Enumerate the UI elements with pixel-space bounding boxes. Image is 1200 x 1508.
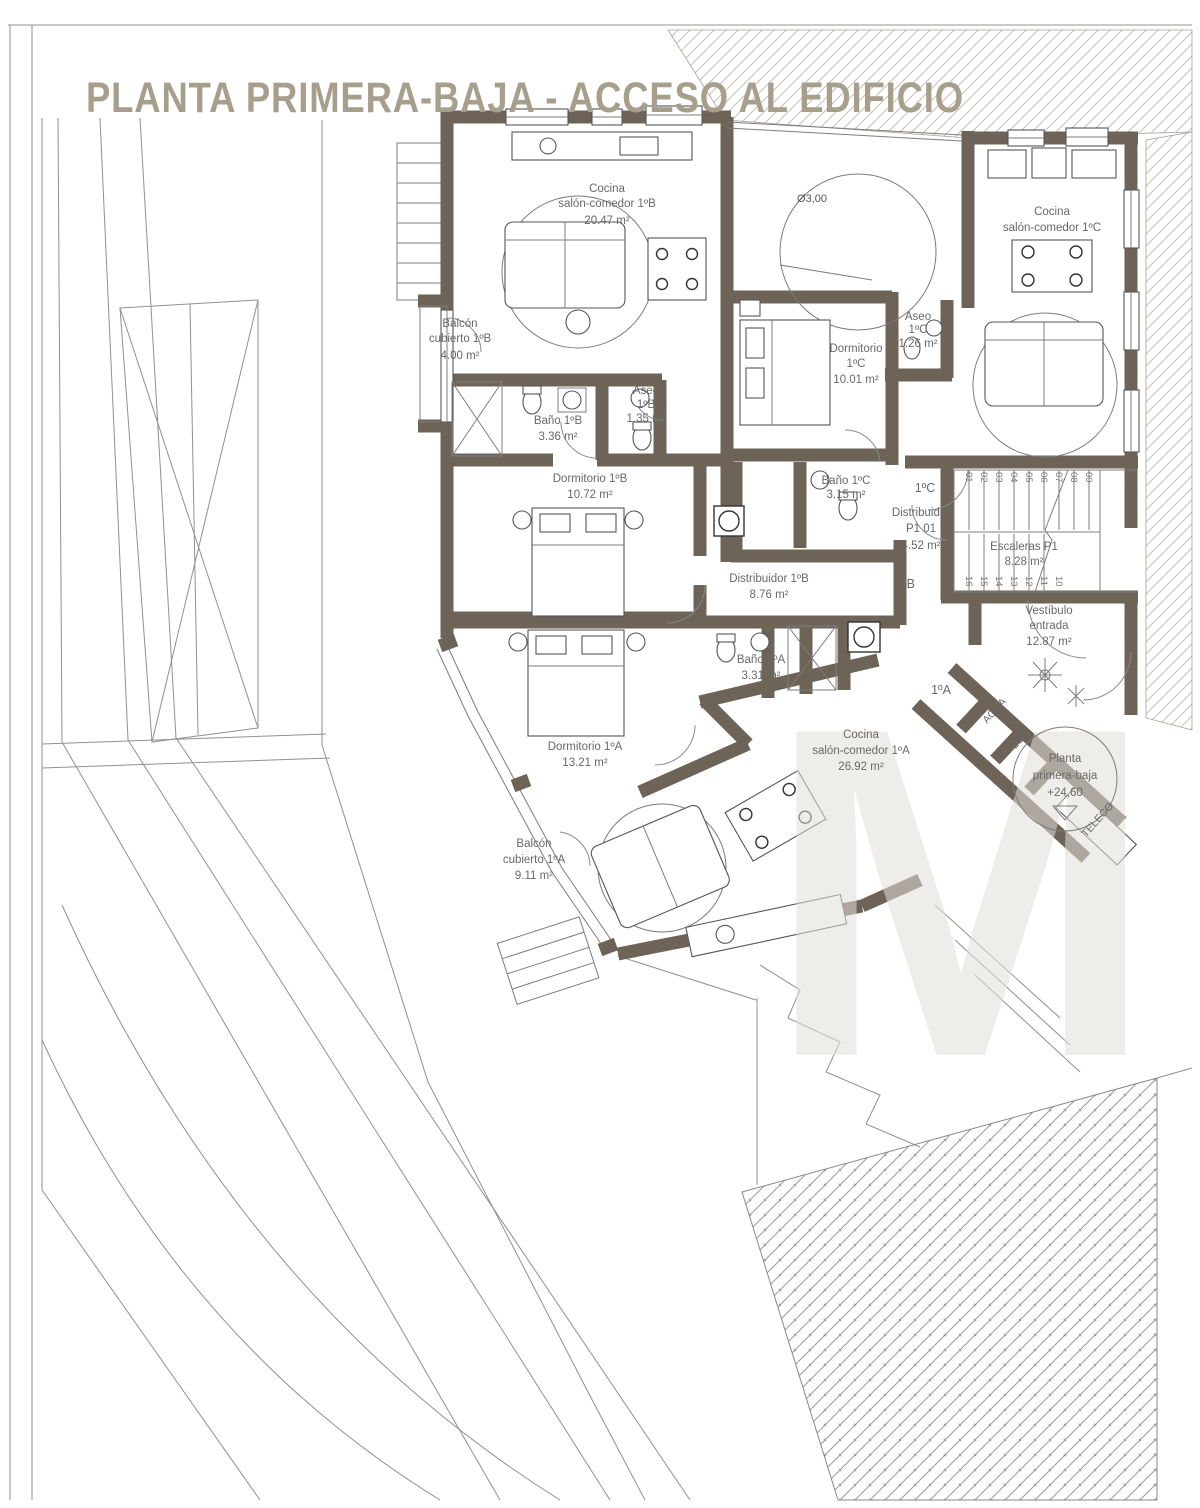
svg-text:+24,60: +24,60 xyxy=(1047,787,1083,799)
svg-text:Balcóncubierto 1ºA9.11 m²: Balcóncubierto 1ºA9.11 m² xyxy=(503,838,566,882)
svg-text:Baño 1ºB3.36 m²: Baño 1ºB3.36 m² xyxy=(534,415,583,443)
stair-number: 13 xyxy=(1008,576,1019,587)
stair-number: 01 xyxy=(963,472,974,483)
svg-text:Cocinasalón-comedor 1ºC: Cocinasalón-comedor 1ºC xyxy=(1003,206,1101,234)
stair-number: 05 xyxy=(1023,472,1034,483)
patio-diameter-label: Ø3,00 xyxy=(797,193,827,205)
stair-number: 11 xyxy=(1038,576,1049,586)
level-marker-line: primera-baja xyxy=(1033,770,1098,782)
svg-text:Balcóncubierto 1ºB4.00 m²: Balcóncubierto 1ºB4.00 m² xyxy=(429,318,492,362)
unit-tag-1b: 1ºB xyxy=(895,577,915,591)
svg-text:Dormitorio 1ºB10.72 m²: Dormitorio 1ºB10.72 m² xyxy=(553,473,628,501)
unit-tag-1c: 1ºC xyxy=(915,481,936,495)
stair-number: 07 xyxy=(1053,472,1064,483)
stair-number: 16 xyxy=(963,576,974,587)
svg-text:Vestíbuloentrada12.87 m²: Vestíbuloentrada12.87 m² xyxy=(1025,605,1072,648)
svg-text:Dormitorio1ºC10.01 m²: Dormitorio1ºC10.01 m² xyxy=(829,343,882,386)
svg-text:Cocinasalón-comedor 1ºB20.47 m: Cocinasalón-comedor 1ºB20.47 m² xyxy=(558,183,656,227)
floorplan-drawing: 01 02 03 04 05 06 07 08 09 16 15 14 13 1… xyxy=(0,0,1200,1508)
stair-number: 10 xyxy=(1053,576,1064,587)
staircase: 01 02 03 04 05 06 07 08 09 16 15 14 13 1… xyxy=(954,470,1138,592)
page-title: PLANTA PRIMERA-BAJA - ACCESO AL EDIFICIO xyxy=(86,74,964,122)
level-marker-line: +24,60 xyxy=(1047,787,1083,799)
floorplan-page: 01 02 03 04 05 06 07 08 09 16 15 14 13 1… xyxy=(0,0,1200,1508)
svg-text:Distribuidor 1ºB8.76 m²: Distribuidor 1ºB8.76 m² xyxy=(729,573,809,601)
svg-text:Dormitorio 1ºA13.21 m²: Dormitorio 1ºA13.21 m² xyxy=(548,741,623,769)
stair-number: 04 xyxy=(1008,472,1019,483)
stair-number: 12 xyxy=(1023,576,1034,587)
stair-number: 08 xyxy=(1068,472,1079,483)
svg-text:primera-baja: primera-baja xyxy=(1033,770,1098,782)
exterior-stair xyxy=(397,143,445,300)
unit-tag-1a: 1ºA xyxy=(931,683,952,697)
svg-text:Baño 1ºC3.15 m²: Baño 1ºC3.15 m² xyxy=(822,475,871,501)
stair-number: 14 xyxy=(993,576,1004,587)
stair-number: 02 xyxy=(978,472,989,483)
stair-number: 15 xyxy=(978,576,989,587)
svg-text:Planta: Planta xyxy=(1049,753,1082,765)
watermark-letter: M xyxy=(765,630,1157,1155)
stair-number: 09 xyxy=(1083,472,1094,483)
stair-number: 06 xyxy=(1038,472,1049,483)
level-marker-line: Planta xyxy=(1049,753,1082,765)
stair-number: 03 xyxy=(993,472,1004,483)
